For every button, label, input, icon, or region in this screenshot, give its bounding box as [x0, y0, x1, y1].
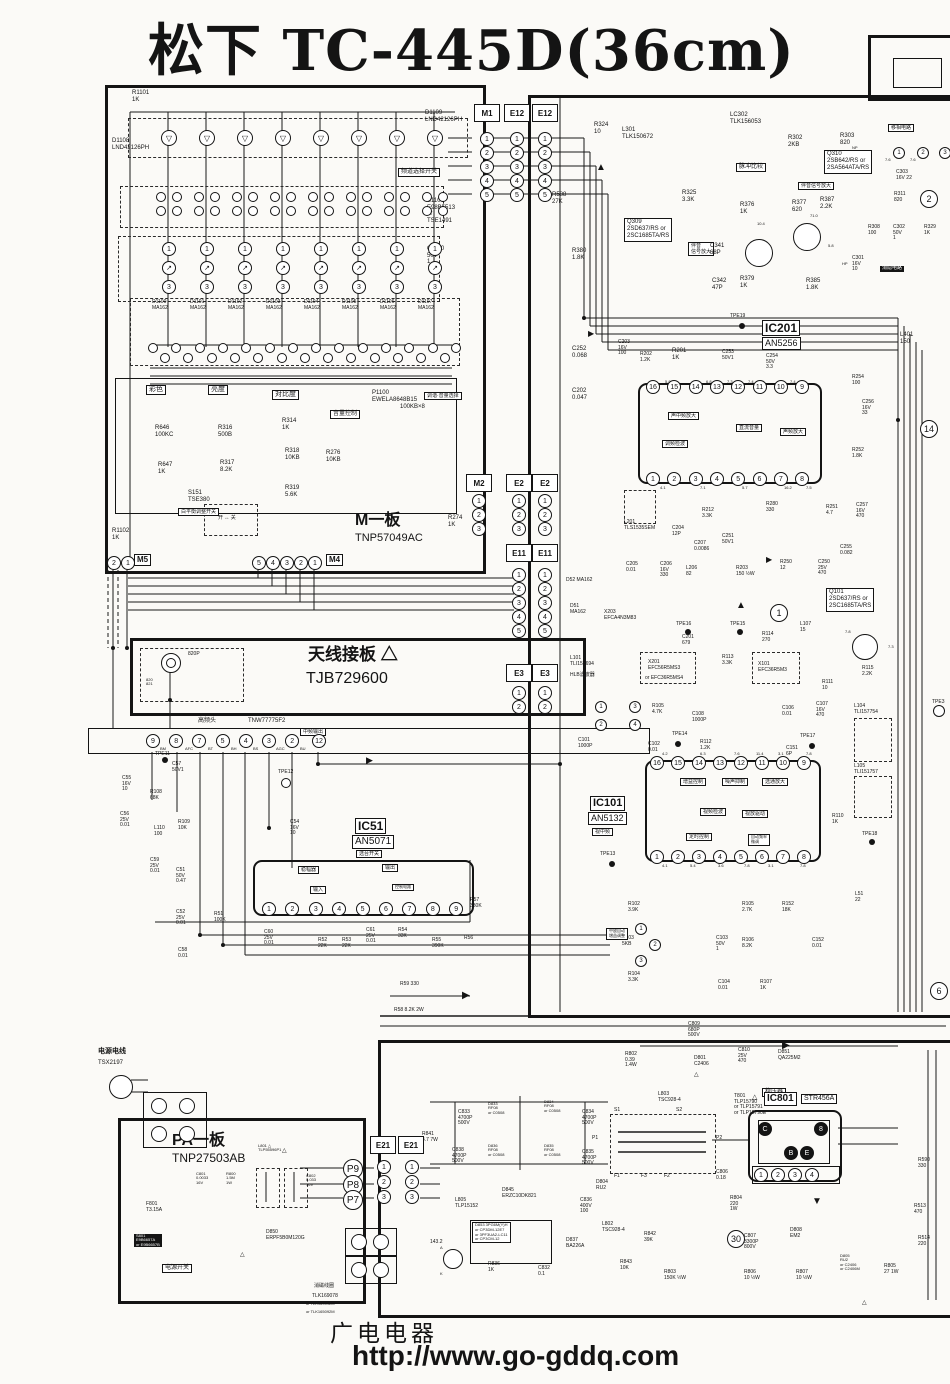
connector-pin [207, 353, 217, 363]
connector-pin [362, 206, 372, 216]
connector-pin: 2 [107, 556, 121, 570]
schematic-label: 视中频 [592, 828, 613, 836]
connector-pin [428, 343, 438, 353]
connector-pin: 3 [512, 596, 526, 610]
schematic-label: AGC [276, 747, 285, 751]
schematic-label: L107 15 [800, 622, 811, 633]
schematic-label: F2 [664, 1174, 670, 1180]
schematic-label: R319 5.6K [285, 485, 299, 498]
schematic-label: A [440, 1246, 443, 1250]
schematic-label: D1102 MA162 [228, 300, 244, 311]
schematic-label: P1 [592, 1136, 598, 1142]
schematic-label: T801 TLP15790 or TLP15791 or TLP15790E [734, 1094, 766, 1116]
schematic-label: C833 4700P 500V [458, 1110, 472, 1127]
connector-pin [370, 353, 380, 363]
connector-E3: E3 [506, 664, 532, 682]
connector-pin [286, 206, 296, 216]
schematic-label: R105 2.7K [742, 902, 754, 913]
connector-pin: ↗ [352, 261, 366, 275]
connector-pin [362, 192, 372, 202]
junction-dot [316, 762, 320, 766]
schematic-label: D1104 MA162 [304, 300, 320, 311]
connector-pin [265, 343, 275, 353]
schematic-label: R251 4.7 [826, 505, 838, 516]
connector-pin [232, 206, 242, 216]
schematic-label: C838 4700P 500V [452, 1148, 466, 1165]
schematic-label: C59 25V 0.01 [150, 858, 160, 875]
schematic-label: R276 10KB [326, 450, 341, 463]
schematic-label: 脉冲比较 [736, 163, 766, 172]
connector-pin: 1 [538, 568, 552, 582]
connector-pin: 14 [920, 420, 938, 438]
schematic-label: R317 8.2K [220, 460, 234, 473]
schematic-label: R841 4.7 7W [422, 1132, 438, 1143]
connector-pin: 1 [512, 568, 526, 582]
connector-pin: 8 [795, 472, 809, 486]
schematic-label: R203 150 ½W [736, 566, 755, 577]
connector-pin: 5 [356, 902, 370, 916]
connector-pin: 10 [776, 756, 790, 770]
schematic-label: Q309 2SD637/RS or 2SC1685TA/RS [624, 218, 672, 242]
connector-pin: ▽ [199, 130, 215, 146]
junction-dot [609, 861, 615, 867]
schematic-label: TPE13 [600, 852, 615, 858]
schematic-label: 4.2 [662, 752, 668, 756]
schematic-label: BH [231, 747, 237, 751]
connector-pin: 6 [753, 472, 767, 486]
schematic-label: R56 [464, 936, 473, 942]
junction-dot [685, 629, 691, 635]
connector-pin [400, 192, 410, 202]
connector-pin: 3 [428, 280, 442, 294]
connector-pin: 5 [538, 188, 552, 202]
board-outline [128, 118, 468, 158]
connector-pin: 2 [649, 939, 661, 951]
connector-E2: E2 [532, 474, 558, 492]
schematic-label: D51 MA162 [570, 604, 586, 615]
connector-pin: 4 [805, 1168, 819, 1182]
schematic-label: 7.5 [806, 486, 812, 490]
schematic-label: 4.1 [660, 486, 666, 490]
connector-pin: 3 [377, 1190, 391, 1204]
schematic-label: C836 400V 100 [580, 1198, 592, 1215]
schematic-label: R380 1.8K [572, 248, 586, 261]
connector-pin: 3 [280, 556, 294, 570]
schematic-label: HP [842, 262, 848, 266]
connector-pin: ↗ [238, 261, 252, 275]
connector-E12: E12 [532, 104, 558, 122]
schematic-label: C101 1000P [578, 738, 592, 749]
connector-pin: 3 [309, 902, 323, 916]
connector-pin: ↗ [200, 261, 214, 275]
schematic-label: R590 330 [918, 1158, 930, 1169]
connector-pin: 1 [512, 494, 526, 508]
connector-pin [422, 206, 432, 216]
schematic-label: M一板 [355, 512, 400, 530]
connector-pin: 1 [262, 902, 276, 916]
schematic-label: AN5132 [588, 812, 627, 825]
connector-pin [194, 192, 204, 202]
schematic-label: 10.4 [757, 222, 765, 226]
schematic-label: C809 680P 500V [688, 1022, 700, 1039]
schematic-label: D1105 MA162 [342, 300, 358, 311]
schematic-label: C254 50V 3.3 [766, 354, 778, 371]
schematic-label: ▲ [596, 162, 606, 173]
schematic-label: TPE14 [672, 732, 687, 738]
schematic-label: R329 1K [924, 225, 936, 236]
schematic-label: 声频放大 [780, 428, 806, 436]
schematic-label: ▲ [736, 600, 746, 611]
junction-dot [582, 316, 586, 320]
junction-dot [125, 646, 129, 650]
schematic-label: C60 25V 0.01 [264, 930, 274, 947]
schematic-label: 稳幅器 [298, 866, 319, 874]
connector-E21: E21 [370, 1136, 396, 1154]
schematic-label: C252 0.068 [572, 346, 587, 359]
schematic-label: 100KB×8 [400, 404, 425, 411]
schematic-label: R105 4.7K [652, 704, 664, 715]
connector-pin [373, 1262, 389, 1278]
connector-pin: 1 [650, 850, 664, 864]
schematic-label: R376 1K [740, 202, 754, 215]
board-outline [130, 298, 460, 366]
schematic-label: R110 1K [832, 814, 844, 825]
connector-pin: 30 [727, 1230, 745, 1248]
schematic-label: R311 820 [894, 192, 906, 203]
schematic-label: TNP27503AB [172, 1152, 245, 1165]
schematic-label: TNP57049AC [355, 532, 423, 544]
schematic-label: C834 4700P 500V [582, 1110, 596, 1127]
connector-pin: 2 [480, 146, 494, 160]
schematic-label: L201 TLS1535SEM [624, 520, 655, 531]
connector-pin: 1 [635, 923, 647, 935]
schematic-label: R379 1K [740, 276, 754, 289]
schematic-label: R58 8.2K 2W [394, 1008, 424, 1014]
junction-dot [111, 646, 115, 650]
schematic-label: 天线接板 △ [308, 646, 398, 665]
schematic-label: R212 3.3K [702, 508, 714, 519]
schematic-label: C207 0.0086 [694, 541, 709, 552]
schematic-label: R53 22K [342, 938, 351, 949]
schematic-label: R802 0.39 1.4W [625, 1052, 637, 1069]
connector-pin: 1 [754, 1168, 768, 1182]
connector-pin: 2 [538, 146, 552, 160]
schematic-label: 亮度 [208, 385, 228, 395]
connector-pin: 7 [776, 850, 790, 864]
connector-pin: 5 [538, 624, 552, 638]
schematic-label: C835 4700P 500V [582, 1150, 596, 1167]
schematic-label: L805 TLP15152 [455, 1198, 478, 1209]
connector-pin: 3 [314, 280, 328, 294]
connector-pin: 1 [646, 472, 660, 486]
junction-dot [869, 839, 875, 845]
schematic-label: X203 EFCA4N3M83 [604, 610, 636, 621]
schematic-label: D52 MA162 [566, 578, 592, 584]
schematic-label: 定时控制 [686, 833, 712, 841]
connector-M1: M1 [474, 104, 500, 122]
schematic-label: 中放自动 增益调整 [606, 928, 628, 940]
symbol-layer: R1101 1KD1108 LND42126PHD1109 LND42126PH… [0, 0, 950, 1384]
connector-pin: 3 [689, 472, 703, 486]
connector-pin: 3 [692, 850, 706, 864]
connector-pin: 2 [294, 556, 308, 570]
schematic-label: C251 50V1 [722, 534, 734, 545]
connector-pin: 3 [939, 147, 950, 159]
schematic-label: 调谐·音量选择 [424, 392, 462, 400]
schematic-label: C104 0.01 [718, 980, 730, 991]
connector-pin [210, 192, 220, 202]
schematic-label: R318 10KB [285, 448, 300, 461]
schematic-label: C250 25V 470 [818, 560, 830, 577]
schematic-label: 白平衡调整开关 [178, 508, 219, 516]
connector-pin [351, 1234, 367, 1250]
connector-pin [793, 223, 821, 251]
connector-pin [324, 206, 334, 216]
schematic-label: L401 150 [900, 332, 913, 345]
schematic-label: S2 [676, 1108, 682, 1114]
connector-pin: 1 [308, 556, 322, 570]
schematic-label: TPE18 [862, 832, 877, 838]
schematic-label: TJB729600 [306, 670, 388, 688]
connector-pin: 2 [512, 508, 526, 522]
junction-dot [267, 826, 271, 830]
schematic-label: P1100 EWELA8648B15 [372, 390, 417, 403]
schematic-label: L802 TSC928-4 [602, 1222, 625, 1233]
junction-dot [737, 629, 743, 635]
connector-pin [172, 206, 182, 216]
connector-pin [933, 705, 945, 717]
connector-pin: 1 [390, 242, 404, 256]
schematic-label: R646 100KC [155, 425, 173, 438]
schematic-label: C802 0.033 16V [306, 1174, 316, 1187]
schematic-label: L104 TLI157754 [854, 704, 878, 715]
schematic-label: R250 12 [780, 560, 792, 571]
schematic-label: C61 25V 0.01 [366, 928, 376, 945]
schematic-label: C56 25V 0.01 [120, 812, 130, 829]
connector-pin: 1 [480, 132, 494, 146]
schematic-label: HLB滤波器 [570, 673, 595, 679]
schematic-label: 7.8 [744, 864, 750, 868]
connector-pin: 4 [510, 174, 524, 188]
connector-pin [166, 658, 176, 668]
board-outline [256, 1168, 280, 1208]
schematic-label: R385 1.8K [806, 278, 820, 291]
connector-pin: 1 [595, 701, 607, 713]
junction-dot [896, 418, 900, 422]
schematic-label: R836 1K [488, 1262, 500, 1273]
schematic-label: R588 27K [552, 192, 566, 205]
schematic-label: R112 1.2K [700, 740, 712, 751]
connector-pin [148, 343, 158, 353]
connector-pin: 3 [352, 280, 366, 294]
connector-pin: ▽ [237, 130, 253, 146]
schematic-label: △ [752, 1094, 757, 1102]
schematic-label: D808 EM2 [790, 1228, 802, 1239]
connector-pin [172, 192, 182, 202]
schematic-label: IC201 [762, 320, 800, 336]
schematic-label: Q101 2SD637/RS or 2SC1685TA/RS [826, 588, 874, 612]
schematic-label: TNW77775F2 [248, 718, 285, 725]
schematic-label: 输入 [310, 886, 326, 894]
schematic-label: D834 RF08 or C0508 [544, 1100, 560, 1113]
schematic-label: C201 679 [682, 635, 694, 646]
connector-pin [286, 192, 296, 202]
schematic-label: C151 6P [786, 746, 798, 757]
connector-pin [160, 353, 170, 363]
schematic-label: △ [862, 1300, 867, 1307]
connector-pin: 1 [238, 242, 252, 256]
connector-pin [422, 192, 432, 202]
schematic-label: R804 220 1W [730, 1196, 742, 1213]
junction-dot [168, 698, 172, 702]
connector-pin: 3 [788, 1168, 802, 1182]
schematic-label: L301 TLK150672 [622, 127, 653, 140]
schematic-label: C302 50V 1 [893, 225, 905, 242]
schematic-label: D801 C2406 [694, 1056, 709, 1067]
schematic-label: C202 0.047 [572, 388, 587, 401]
schematic-label: 820 821 [146, 678, 153, 687]
schematic-label: D1100 MA162 [152, 300, 168, 311]
connector-pin [270, 192, 280, 202]
connector-pin: 16 [650, 756, 664, 770]
schematic-label: 视频检波 [700, 808, 726, 816]
schematic-label: R806 10 ½W [744, 1270, 760, 1281]
connector-pin: 2 [671, 850, 685, 864]
connector-pin [300, 353, 310, 363]
schematic-label: L105 TLI151757 [854, 764, 878, 775]
connector-pin: 3 [405, 1190, 419, 1204]
connector-pin: 1 [770, 604, 788, 622]
schematic-label: TSX2197 [98, 1060, 123, 1067]
schematic-label: 开 ↔ 关 [218, 516, 236, 522]
schematic-label: 7.6 [885, 158, 891, 162]
connector-pin: 3 [390, 280, 404, 294]
schematic-label: C103 50V 1 [716, 936, 728, 953]
connector-pin: 5 [510, 188, 524, 202]
connector-pin [451, 343, 461, 353]
connector-E12: E12 [504, 104, 530, 122]
connector-pin [358, 343, 368, 353]
connector-pin: B [784, 1146, 798, 1160]
connector-pin: 8 [426, 902, 440, 916]
connector-pin [443, 1249, 463, 1269]
schematic-label: C253 50V1 [722, 350, 734, 361]
connector-pin: 1 [428, 242, 442, 256]
schematic-label: D837 BA226A [566, 1238, 584, 1249]
schematic-label: R201 1K [672, 348, 686, 361]
board-outline [610, 1114, 716, 1174]
connector-pin [384, 206, 394, 216]
schematic-label: C303 16V 22 [896, 170, 912, 181]
schematic-label: C107 16V 470 [816, 702, 828, 719]
schematic-label: ▶ [782, 1040, 790, 1051]
schematic-label: C54 16V 10 [290, 820, 299, 837]
connector-pin: 9 [146, 734, 160, 748]
schematic-label: ▼ [812, 1196, 822, 1207]
schematic-label: 消隐电路 [880, 266, 904, 272]
schematic-label: L110 100 [154, 826, 165, 837]
schematic-label: 高频头 [198, 718, 216, 725]
connector-pin [151, 1098, 167, 1114]
schematic-label: P2 [716, 1136, 722, 1142]
connector-pin: 2 [917, 147, 929, 159]
connector-pin [270, 206, 280, 216]
connector-pin: ▽ [275, 130, 291, 146]
board-outline [854, 776, 892, 818]
junction-dot [558, 762, 562, 766]
connector-pin: 11 [755, 756, 769, 770]
schematic-label: IC101 [590, 796, 625, 811]
schematic-label: R111 10 [822, 680, 833, 691]
schematic-label: R51 100K [214, 912, 226, 923]
schematic-label: 消磁线圈 [314, 1284, 334, 1290]
connector-pin: 2 [512, 582, 526, 596]
connector-pin: 4 [266, 556, 280, 570]
schematic-label: R59 330 [400, 982, 419, 988]
connector-pin: 2 [538, 508, 552, 522]
schematic-label: 移相电路 [888, 124, 914, 132]
schematic-label: C205 0.01 [626, 562, 638, 573]
schematic-label: K [440, 1272, 443, 1276]
schematic-label: R1102 1K [112, 528, 129, 541]
schematic-label: R280 330 [766, 502, 778, 513]
schematic-label: C806 0.18 [716, 1170, 728, 1181]
footer-url[interactable]: http://www.go-gddq.com [352, 1340, 679, 1372]
schematic-label: C152 0.01 [812, 938, 824, 949]
schematic-label: 7.8 [845, 630, 851, 634]
schematic-label: TPE16 [676, 622, 691, 628]
connector-pin: 6 [755, 850, 769, 864]
connector-pin: 1 [121, 556, 135, 570]
schematic-label: BM [160, 747, 166, 751]
schematic-label: R302 2KB [788, 135, 802, 148]
board-outline [120, 186, 444, 228]
schematic-page: R1101 1KD1108 LND42126PHD1109 LND42126PH… [0, 0, 950, 1384]
connector-pin: 2 [512, 700, 526, 714]
connector-pin: 3 [262, 734, 276, 748]
connector-pin: 4 [538, 174, 552, 188]
connector-pin: 1 [405, 1160, 419, 1174]
connector-pin [156, 206, 166, 216]
schematic-label: C301 16V 10 [852, 256, 864, 273]
schematic-label: D1106 MA162 [380, 300, 396, 311]
schematic-label: L801 △ TLP55596P1 [258, 1144, 281, 1153]
schematic-label: 5.7 [742, 486, 748, 490]
schematic-label: R803 150K ½W [664, 1270, 686, 1281]
schematic-label: 视放驱动 [742, 810, 768, 818]
schematic-label: X101 EFC36R5M3 [758, 662, 787, 673]
connector-pin: 4 [710, 472, 724, 486]
connector-pin: 7 [774, 472, 788, 486]
connector-pin [308, 206, 318, 216]
schematic-label: 噪声抑制 [722, 778, 748, 786]
connector-pin: 1 [512, 686, 526, 700]
connector-pin [438, 192, 448, 202]
connector-pin: 1 [538, 494, 552, 508]
schematic-label: LC302 TLK156053 [730, 112, 761, 125]
connector-pin: 1 [472, 494, 486, 508]
connector-pin [384, 192, 394, 202]
connector-pin: 1 [538, 686, 552, 700]
page-title: 松下 TC-445D(36cm) [148, 6, 795, 87]
connector-pin: 4 [239, 734, 253, 748]
schematic-label: C342 47P [712, 278, 726, 291]
schematic-label: △ [694, 1072, 699, 1079]
connector-pin [248, 206, 258, 216]
schematic-label: R513 470 [914, 1204, 926, 1215]
connector-pin: 1 [377, 1160, 391, 1174]
connector-E11: E11 [532, 544, 558, 562]
